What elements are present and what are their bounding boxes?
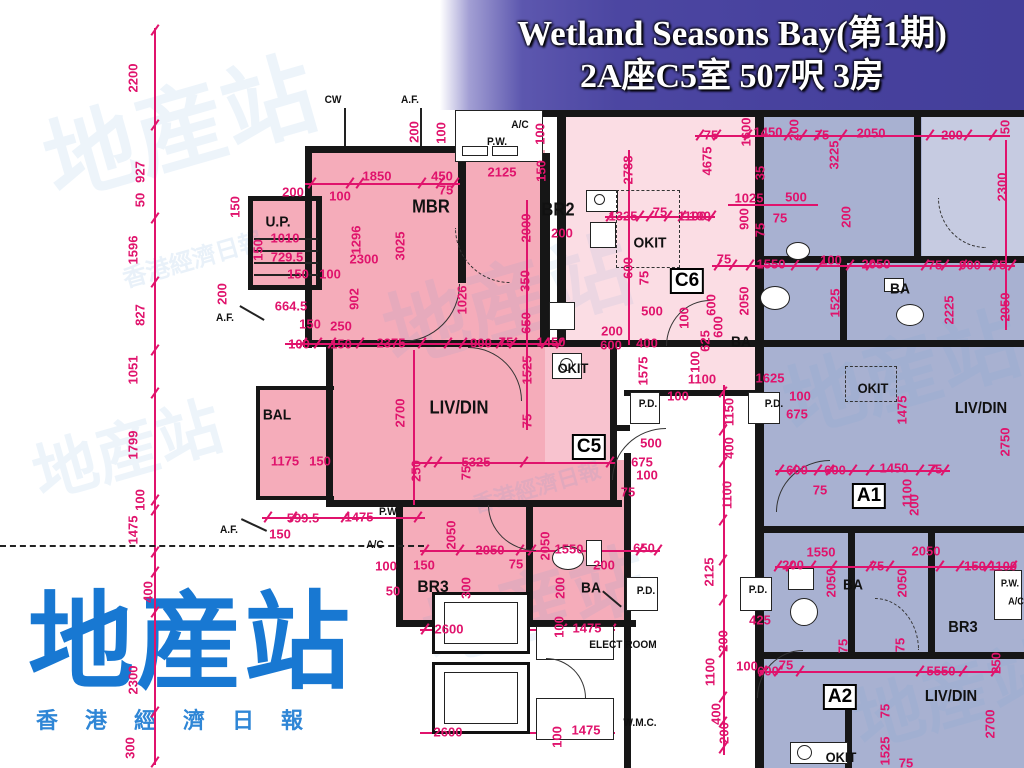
dimension-label: 200 [716,630,731,652]
dimension-label: 1525 [878,737,893,766]
dimension-label: 1475 [573,621,602,636]
fixture-ell [760,286,790,310]
dimension-label: 600 [786,463,808,478]
dimension-label: 1450 [754,125,783,140]
dimension-label: 100 [329,189,351,204]
dimension-label: 75 [653,205,667,220]
room-label: LIV/DIN [430,398,489,419]
dimension-label: 75 [928,462,942,477]
dimension-label: 2300 [350,252,379,267]
dimension-label: 75 [836,639,851,653]
room-label: P.W. [487,136,507,148]
dimension-label: 35 [753,166,768,180]
wall [256,496,334,500]
dimension-label: 1100 [720,481,735,509]
dimension-label: 2600 [435,622,464,637]
unit-info: 2A座C5室 507呎 3房 [580,56,884,97]
fixture-ell [786,242,810,260]
dimension-label: 2300 [995,173,1010,202]
fixture-box [549,302,575,330]
dimension-label: 200 [717,722,732,744]
dimension-label: 150 [309,454,331,469]
dimension-label: 5550 [927,664,956,679]
fixture-box [444,672,518,724]
fixture-ell [594,194,605,205]
fixture-fill [344,108,346,146]
dimension-label: 2050 [444,521,459,550]
dimension-label: 2200 [126,64,141,93]
room-label: LIV/DIN [925,688,977,706]
room-label: OKIT [558,360,589,376]
dimension-label: 100 [288,337,310,352]
dimension-label: 650 [519,312,534,334]
fixture-ell [896,304,924,326]
dimension-label: 1175 [271,454,299,469]
room-label: A.F. [216,312,234,324]
fixture-ell [797,745,812,760]
dimension-label: 1550 [757,257,786,272]
dimension-label: 1475 [345,510,374,525]
wall [305,146,465,153]
dimension-label: 1575 [636,357,651,386]
room-label: U.P. [265,214,290,231]
dimension-label: 1325 [609,209,638,224]
dimension-label: 2050 [824,569,839,598]
dimension-label: 150 [534,160,549,182]
dimension-label: 150 [413,558,435,573]
dimension-label: 200 [593,558,615,573]
room-label: A/C [366,539,383,551]
dimension-label: 75 [928,258,942,273]
dimension-label: 450 [431,169,453,184]
unit-tag: C5 [572,434,606,460]
room-label: BA [581,580,601,597]
dimension-label: 50 [133,193,148,207]
dimension-label: 75 [779,658,793,673]
room-label: A.F. [401,94,419,106]
dimension-label: 350 [518,270,533,292]
dimension-label: 300 [459,577,474,599]
dimension-label: 1450 [537,335,566,350]
dimension-label: 1850 [363,169,392,184]
dimension-label: 250 [330,319,352,334]
dimension-label: 100 [789,389,811,404]
room-fill [700,345,758,395]
dimension-label: 75 [870,559,884,574]
dimension-label: 2125 [488,165,517,180]
wall [458,153,466,283]
dimension-label: 75 [509,557,523,572]
dimension-label: 2300 [126,666,141,695]
dimension-label: 400 [141,581,156,603]
door-arc [546,658,586,698]
dimension-label: 100 [688,351,703,373]
unit-tag: A2 [823,684,857,710]
wall [248,285,320,290]
room-label: BR2 [541,200,574,221]
dimension-label: 2050 [737,287,752,316]
dimension-label: 902 [347,288,362,310]
dimension-label: 1799 [126,431,141,460]
room-label: A/C [511,119,528,131]
dimension-label: 75 [499,335,513,350]
dimension-label: 200 [407,121,422,143]
dimension-label: 1296 [349,226,364,255]
dimension-label: 75 [773,211,787,226]
room-label: BA [731,334,751,351]
dimension-label: 150 [251,239,266,261]
wall [326,500,622,507]
dimension-label: 3025 [393,232,408,261]
room-label: CW [325,94,342,106]
dimension-label: 927 [133,161,148,183]
dimension-label: 600 [600,338,622,353]
dimension-label: 150 [228,196,243,218]
estate-name: Wetland Seasons Bay(第1期) [517,13,947,56]
dimension-label: 400 [636,336,658,351]
dimension-label: 250 [989,652,1004,674]
dimension-label: 400 [722,437,737,459]
dimension-label: 200 [551,226,573,241]
dimension-label: 75 [813,483,827,498]
unit-tag: A1 [852,483,886,509]
wall [610,425,630,431]
dimension-label: 3225 [827,141,842,170]
dimension-label: 100 [533,123,548,145]
room-label: P.D. [749,584,767,596]
dimension-label: 75 [459,466,474,480]
dimension-label: 75 [899,756,913,768]
dimension-label: 75 [520,414,535,428]
dimension-label: 300 [123,737,138,759]
room-label: P.W. [379,506,399,518]
dimension-label: 75 [717,252,731,267]
dimension-label: 600 [711,316,726,338]
dimension-label: 1525 [520,356,535,385]
dimension-label: 600 [757,664,779,679]
dimension-label: 500 [640,436,662,451]
dimension-label: 200 [787,119,802,141]
title-banner: Wetland Seasons Bay(第1期) 2A座C5室 507呎 3房 [440,0,1024,110]
dimension-label: 425 [749,613,771,628]
dimension-label: 1525 [828,289,843,318]
dimension-label: 150 [964,559,986,574]
dimension-label: 100 [736,659,758,674]
dimension-label: 600 [704,294,719,316]
dimension-label: 827 [133,304,148,326]
fixture-box [994,570,1022,620]
wall [396,500,403,627]
dimension-label: 1600 [739,118,754,147]
dimension-label: 599.5 [287,511,320,526]
dimension-label: 1100 [688,372,716,387]
wall [256,386,260,500]
dimension-label: 500 [641,304,663,319]
dimension-label: 50 [386,584,400,599]
fixture-fill [239,305,264,321]
fixture-ell [790,598,818,626]
dimension-label: 1026 [455,286,470,315]
dimension-label: 75 [753,223,768,237]
dimension-label: 1475 [572,723,601,738]
dimension-label: 2125 [702,558,717,587]
dimension-label: 2700 [983,710,998,739]
dimension-label: 100 [319,267,341,282]
dimension-line [154,28,156,765]
dimension-label: 75 [893,638,908,652]
dimension-label: 2050 [998,293,1013,322]
dimension-label: 100 [552,616,567,638]
dimension-label: 100 [133,489,148,511]
dimension-label: 4675 [700,147,715,176]
dimension-label: 600 [824,463,846,478]
dimension-label: 1475 [895,396,910,425]
room-label: P.D. [639,398,657,410]
dimension-label: 1450 [880,461,909,476]
dimension-label: 1475 [126,516,141,545]
room-label: LIV/DIN [955,400,1007,418]
room-label: A.F. [220,524,238,536]
dimension-label: 1100 [989,559,1017,574]
dimension-label: 75 [637,271,652,285]
dimension-label: 1051 [126,356,141,385]
dimension-label: 200 [782,558,804,573]
dimension-label: 100 [434,122,449,144]
site-logo-text: 地産站 [28,588,352,699]
dimension-label: 2000 [519,214,534,243]
room-label: A/C [1008,597,1024,608]
dimension-label: 2750 [998,428,1013,457]
dimension-label: 200 [215,283,230,305]
dimension-label: 2788 [621,156,636,185]
dimension-label: 2600 [434,725,463,740]
floor-plan-page: 地産站地産站地産站地産站地産站地産站香港經濟日報香港經濟日報U.P.MBRBR2… [0,0,1024,768]
dimension-label: 2050 [912,544,941,559]
dimension-label: 1625 [756,371,785,386]
site-logo-subtext: 香港經濟日報 [36,703,352,735]
dimension-label: 900 [737,208,752,230]
room-label: BR3 [948,619,977,637]
dimension-label: 2375 [377,336,406,351]
dimension-label: 100 [636,468,658,483]
dimension-label: 200 [601,324,623,339]
dimension-label: 664.5 [275,299,308,314]
wall [543,110,1024,117]
dimension-label: 2050 [862,257,891,272]
dimension-label: 75 [878,704,893,718]
dimension-label: 2050 [895,569,910,598]
dimension-label: 200 [941,128,963,143]
room-label: ELECT ROOM [589,639,656,651]
dimension-label: 1550 [555,542,584,557]
wall [914,110,921,263]
unit-tag: C6 [670,268,704,294]
dimension-label: 100 [677,307,692,329]
room-label: P.W. [1001,579,1019,590]
room-label: OKIT [858,380,889,396]
room-fill [260,388,332,498]
fixture-box [462,146,488,156]
dimension-label: 100 [667,389,689,404]
dimension-label: 75 [621,485,635,500]
dimension-label: 2225 [942,296,957,325]
dimension-label: 900 [470,336,492,351]
room-label: BA [890,281,910,298]
dimension-label: 250 [409,460,424,482]
dimension-label: 200 [553,577,568,599]
room-label: MBR [412,197,450,218]
site-logo: 地産站 香港經濟日報 [28,588,352,735]
dimension-label: 1150 [722,398,737,426]
dimension-label: 150 [287,267,309,282]
dimension-label: 100 [375,559,397,574]
fixture-box [590,222,616,248]
dimension-label: 100 [689,209,711,224]
dimension-label: 200 [282,185,304,200]
dimension-label: 1025 [735,191,764,206]
dimension-label: 2050 [538,532,553,561]
dimension-label: 2050 [857,126,886,141]
dimension-label: 100 [820,253,842,268]
dimension-label: 900 [959,258,981,273]
dimension-label: 200 [839,206,854,228]
dimension-label: 100 [550,726,565,748]
dimension-label: 75 [704,128,718,143]
dimension-label: 50 [998,120,1013,134]
boundary-dashed-line [0,545,424,547]
room-label: BA [843,577,863,594]
wall [305,146,312,212]
dimension-label: 1010 [271,231,300,246]
room-label: BAL [263,407,291,424]
dimension-label: 150 [330,337,352,352]
room-label: P.D. [637,585,655,597]
dimension-label: 150 [299,317,321,332]
room-label: BR3 [417,577,448,597]
wall [258,386,334,390]
dimension-label: 500 [785,190,807,205]
room-label: W.M.C. [623,717,656,729]
dimension-label: 1596 [126,236,141,265]
dimension-label: 675 [786,407,808,422]
dimension-label: 1550 [807,545,836,560]
dimension-line [415,462,615,464]
room-label: P.D. [765,398,783,410]
wall [326,345,333,505]
dimension-label: 2700 [393,399,408,428]
dimension-label: 729.5 [271,250,304,265]
dimension-label: 1100 [703,658,718,686]
dimension-label: 200 [907,494,922,516]
dimension-label: 650 [633,541,655,556]
room-label: OKIT [826,749,857,765]
dimension-label: 600 [621,257,636,279]
dimension-label: 150 [269,527,291,542]
dimension-tick [150,756,159,768]
room-label: OKIT [634,235,667,252]
wall [763,526,1024,533]
dimension-label: 75 [439,183,453,198]
dimension-label: 75 [992,258,1006,273]
wall [763,340,1024,347]
dimension-label: 2050 [476,543,505,558]
